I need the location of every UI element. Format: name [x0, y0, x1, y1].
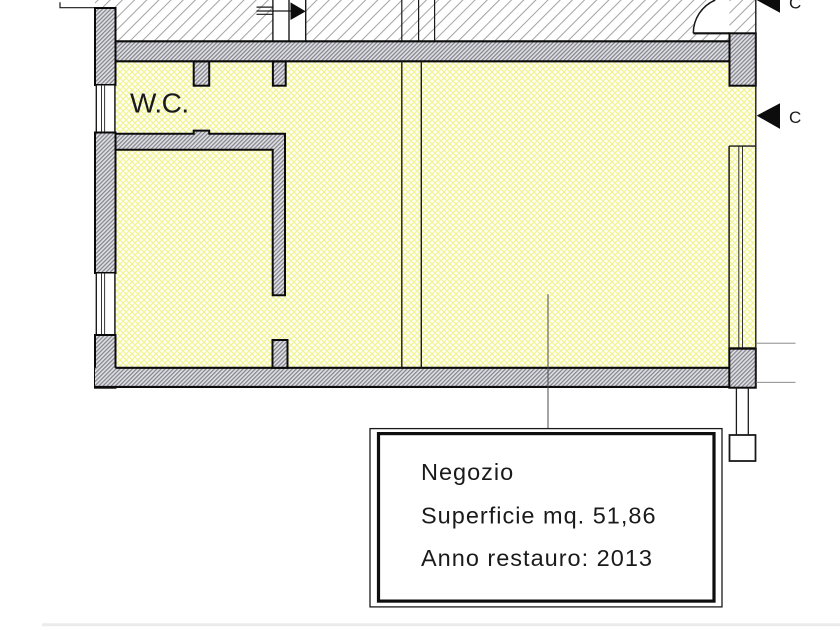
svg-text:W.C.: W.C.	[130, 88, 189, 119]
svg-text:C: C	[789, 0, 801, 13]
svg-text:Negozio: Negozio	[421, 459, 514, 485]
svg-text:Anno restauro: 2013: Anno restauro: 2013	[421, 545, 653, 571]
svg-text:C: C	[789, 108, 801, 127]
svg-text:Superficie mq. 51,86: Superficie mq. 51,86	[421, 503, 657, 529]
